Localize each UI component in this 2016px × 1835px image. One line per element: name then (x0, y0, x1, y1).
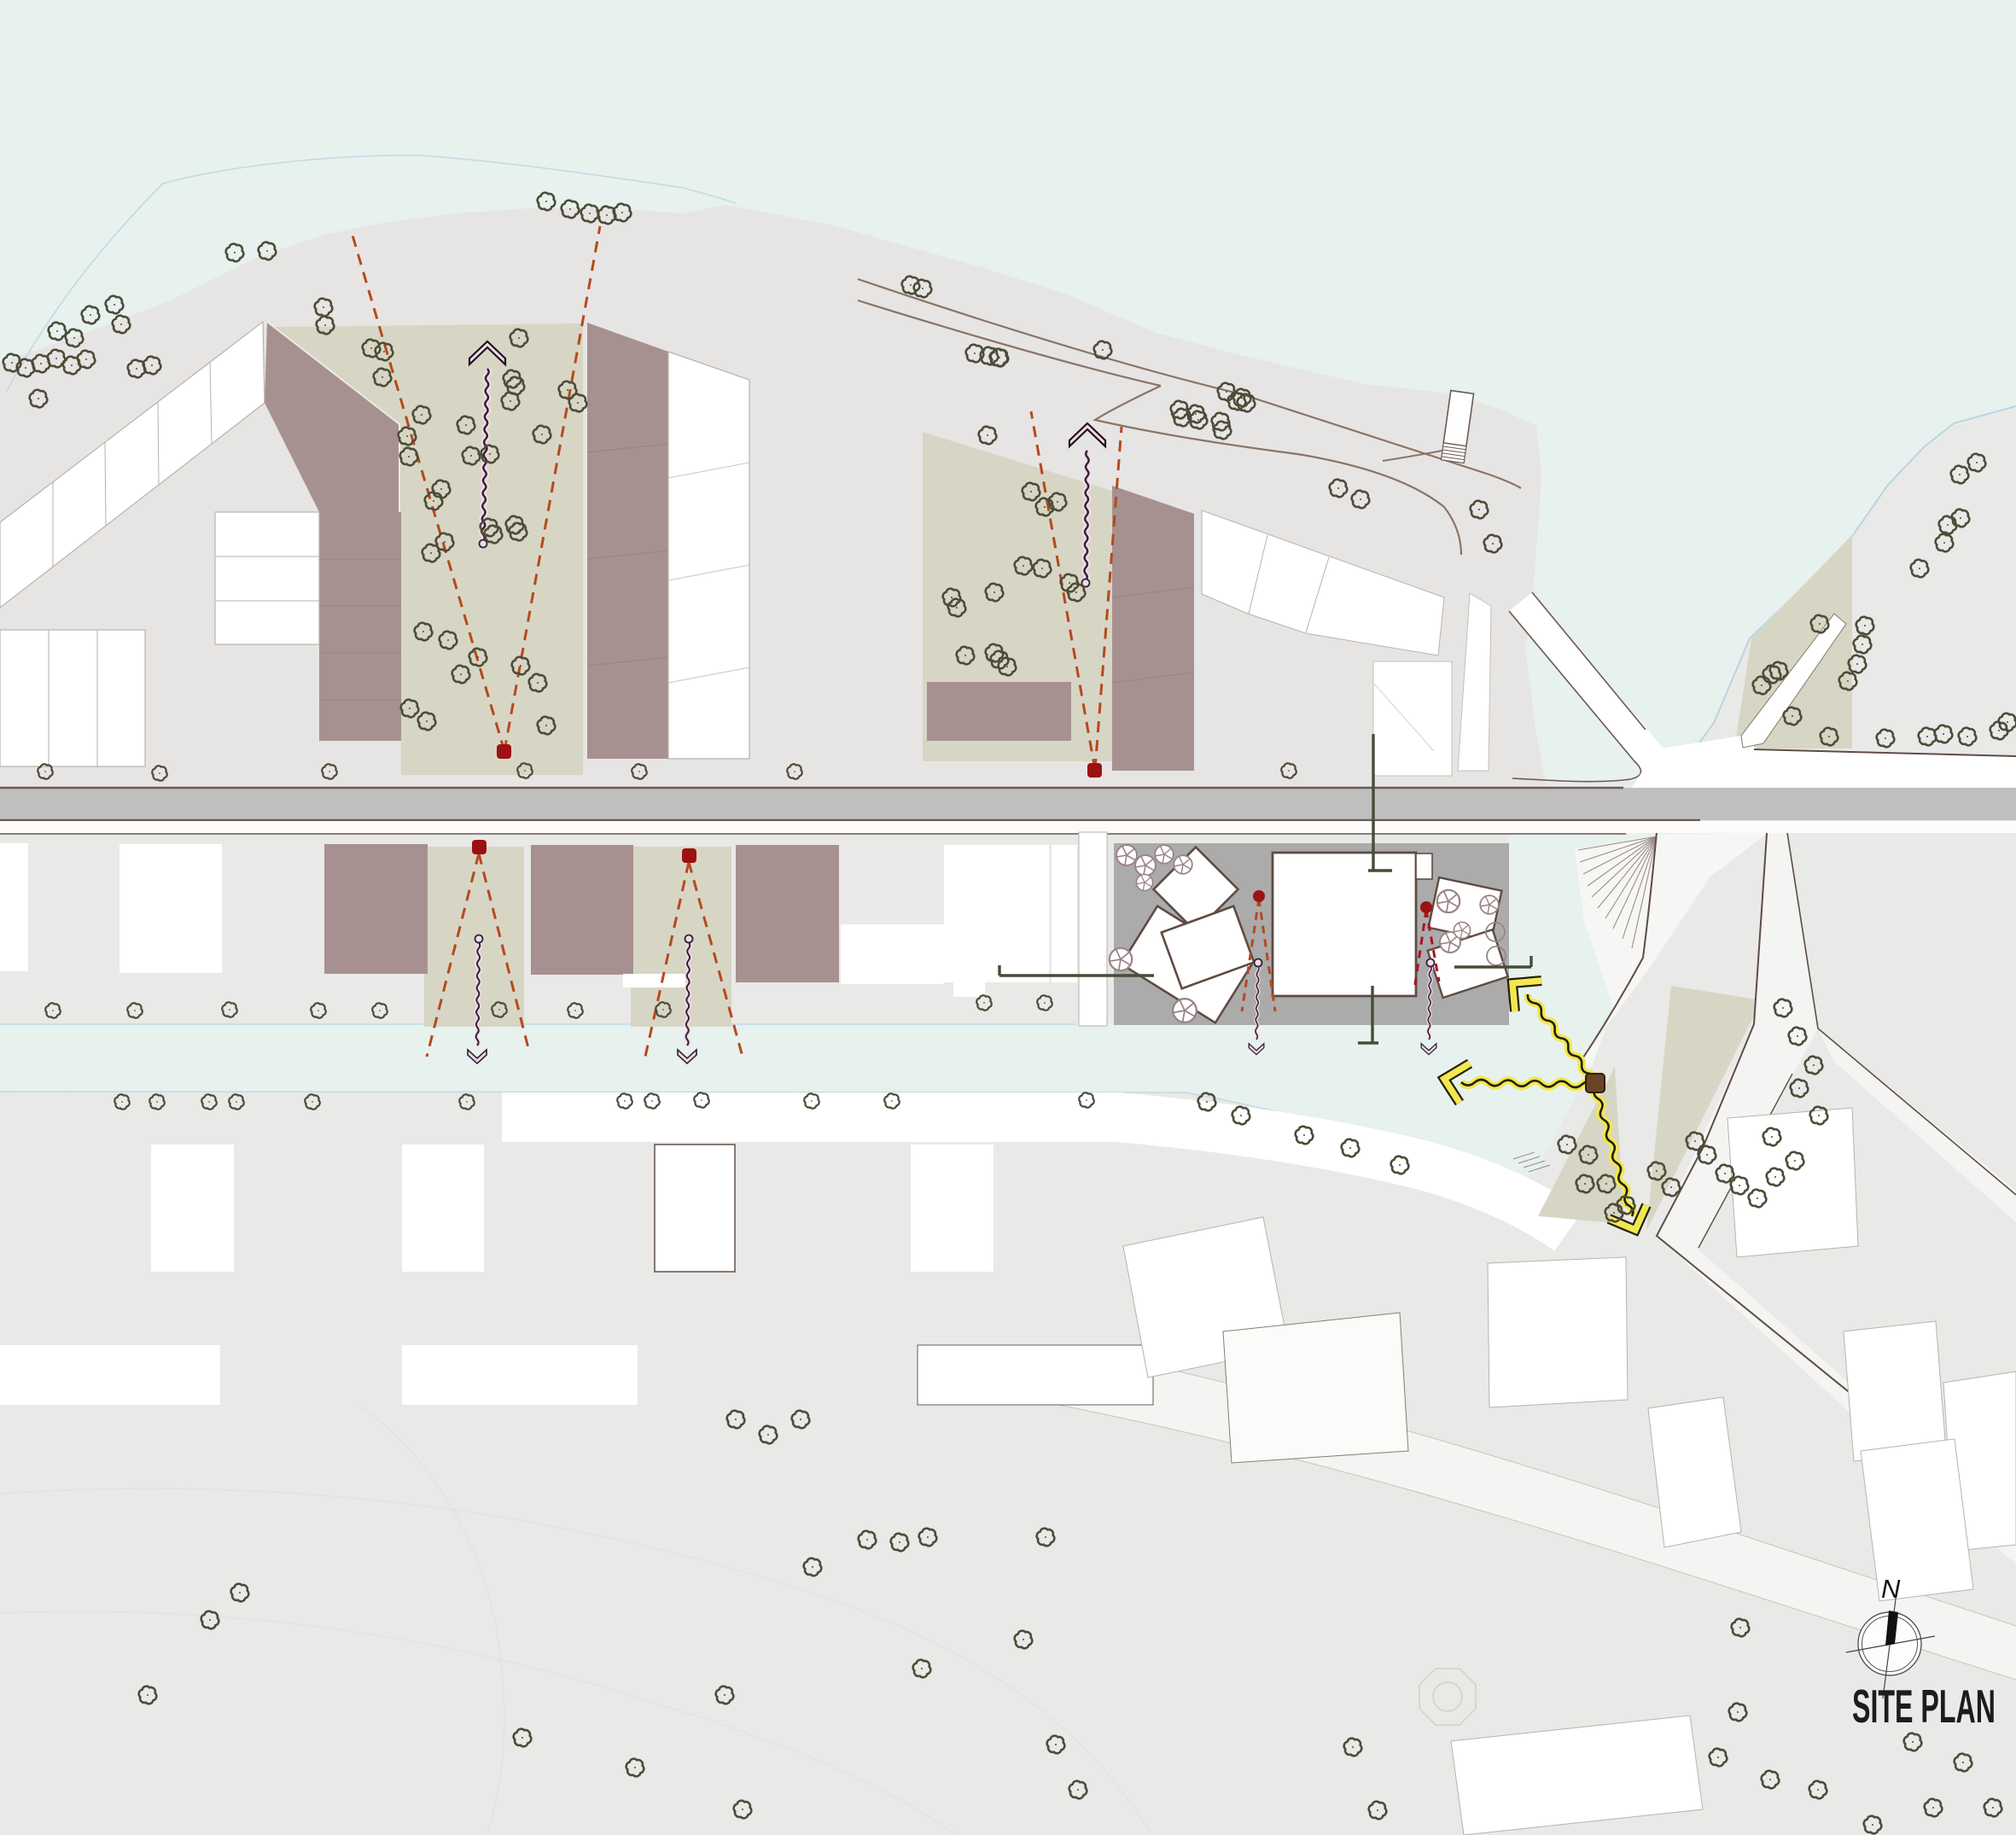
svg-text:N: N (1881, 1574, 1901, 1604)
svg-text:SITE PLAN: SITE PLAN (1852, 1680, 1996, 1733)
